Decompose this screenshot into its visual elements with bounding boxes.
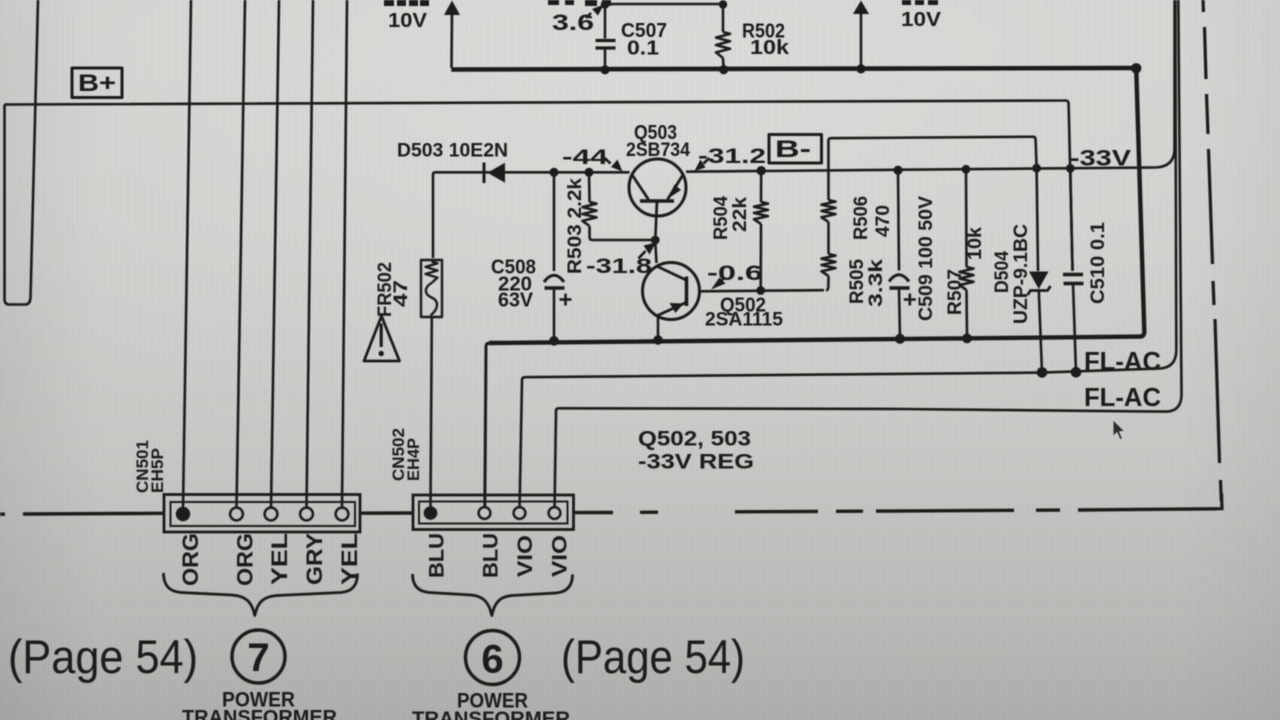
svg-text:D503 10E2N: D503 10E2N <box>397 141 508 162</box>
svg-text:47: 47 <box>391 280 412 307</box>
svg-text:TRANSFORMER: TRANSFORMER <box>182 707 338 720</box>
svg-text:-31.2: -31.2 <box>698 145 766 168</box>
svg-text:2SB734: 2SB734 <box>626 140 690 161</box>
svg-text:BLU: BLU <box>426 533 449 578</box>
svg-text:-33V: -33V <box>1070 146 1131 171</box>
svg-text:B+: B+ <box>78 70 116 97</box>
svg-text:22k: 22k <box>730 197 751 232</box>
svg-text:(Page 54): (Page 54) <box>561 630 745 683</box>
svg-text:FL-AC: FL-AC <box>1084 382 1161 412</box>
svg-text:D504: D504 <box>992 251 1013 293</box>
svg-text:R505: R505 <box>847 259 868 304</box>
svg-text:63V: 63V <box>498 290 534 312</box>
svg-text:10k: 10k <box>965 227 986 260</box>
svg-text:ORG: ORG <box>178 533 203 586</box>
svg-text:C509 100 50V: C509 100 50V <box>916 196 937 321</box>
svg-text:-44: -44 <box>562 146 608 169</box>
svg-text:TRANSFORMER: TRANSFORMER <box>412 709 571 720</box>
svg-text:BLU: BLU <box>480 533 503 578</box>
svg-text:7: 7 <box>247 636 269 680</box>
svg-text:YEL: YEL <box>267 533 292 585</box>
svg-text:Q502, 503: Q502, 503 <box>638 428 751 451</box>
svg-text:10V: 10V <box>388 10 428 32</box>
svg-text:-0.6: -0.6 <box>707 262 763 285</box>
svg-text:10k: 10k <box>750 37 790 59</box>
svg-text:ORG: ORG <box>233 533 258 586</box>
svg-text:EH5P: EH5P <box>148 448 167 493</box>
svg-text:R503 2.2k: R503 2.2k <box>565 178 586 274</box>
svg-text:10V: 10V <box>901 9 942 31</box>
svg-text:6: 6 <box>481 638 503 682</box>
svg-text:EH4P: EH4P <box>404 438 423 481</box>
svg-text:3.3k: 3.3k <box>866 258 887 307</box>
svg-text:GRY: GRY <box>302 533 327 585</box>
svg-text:FL-AC: FL-AC <box>1084 346 1161 376</box>
svg-text:0.1: 0.1 <box>627 38 659 60</box>
svg-text:UZP-9.1BC: UZP-9.1BC <box>1011 224 1032 324</box>
svg-text:-31.8: -31.8 <box>586 255 652 278</box>
svg-text:R507: R507 <box>945 269 966 315</box>
svg-text:VIO: VIO <box>549 535 572 577</box>
svg-text:(Page 54): (Page 54) <box>8 630 198 683</box>
svg-text:B-: B- <box>775 136 811 163</box>
svg-text:R504: R504 <box>711 196 732 240</box>
svg-text:2SA1115: 2SA1115 <box>705 310 783 331</box>
svg-text:3.6: 3.6 <box>552 10 594 35</box>
svg-text:C510 0.1: C510 0.1 <box>1088 222 1109 304</box>
svg-text:R506: R506 <box>851 196 872 240</box>
svg-text:-33V REG: -33V REG <box>638 451 754 474</box>
svg-text:470: 470 <box>873 205 894 237</box>
svg-text:VIO: VIO <box>514 535 537 577</box>
